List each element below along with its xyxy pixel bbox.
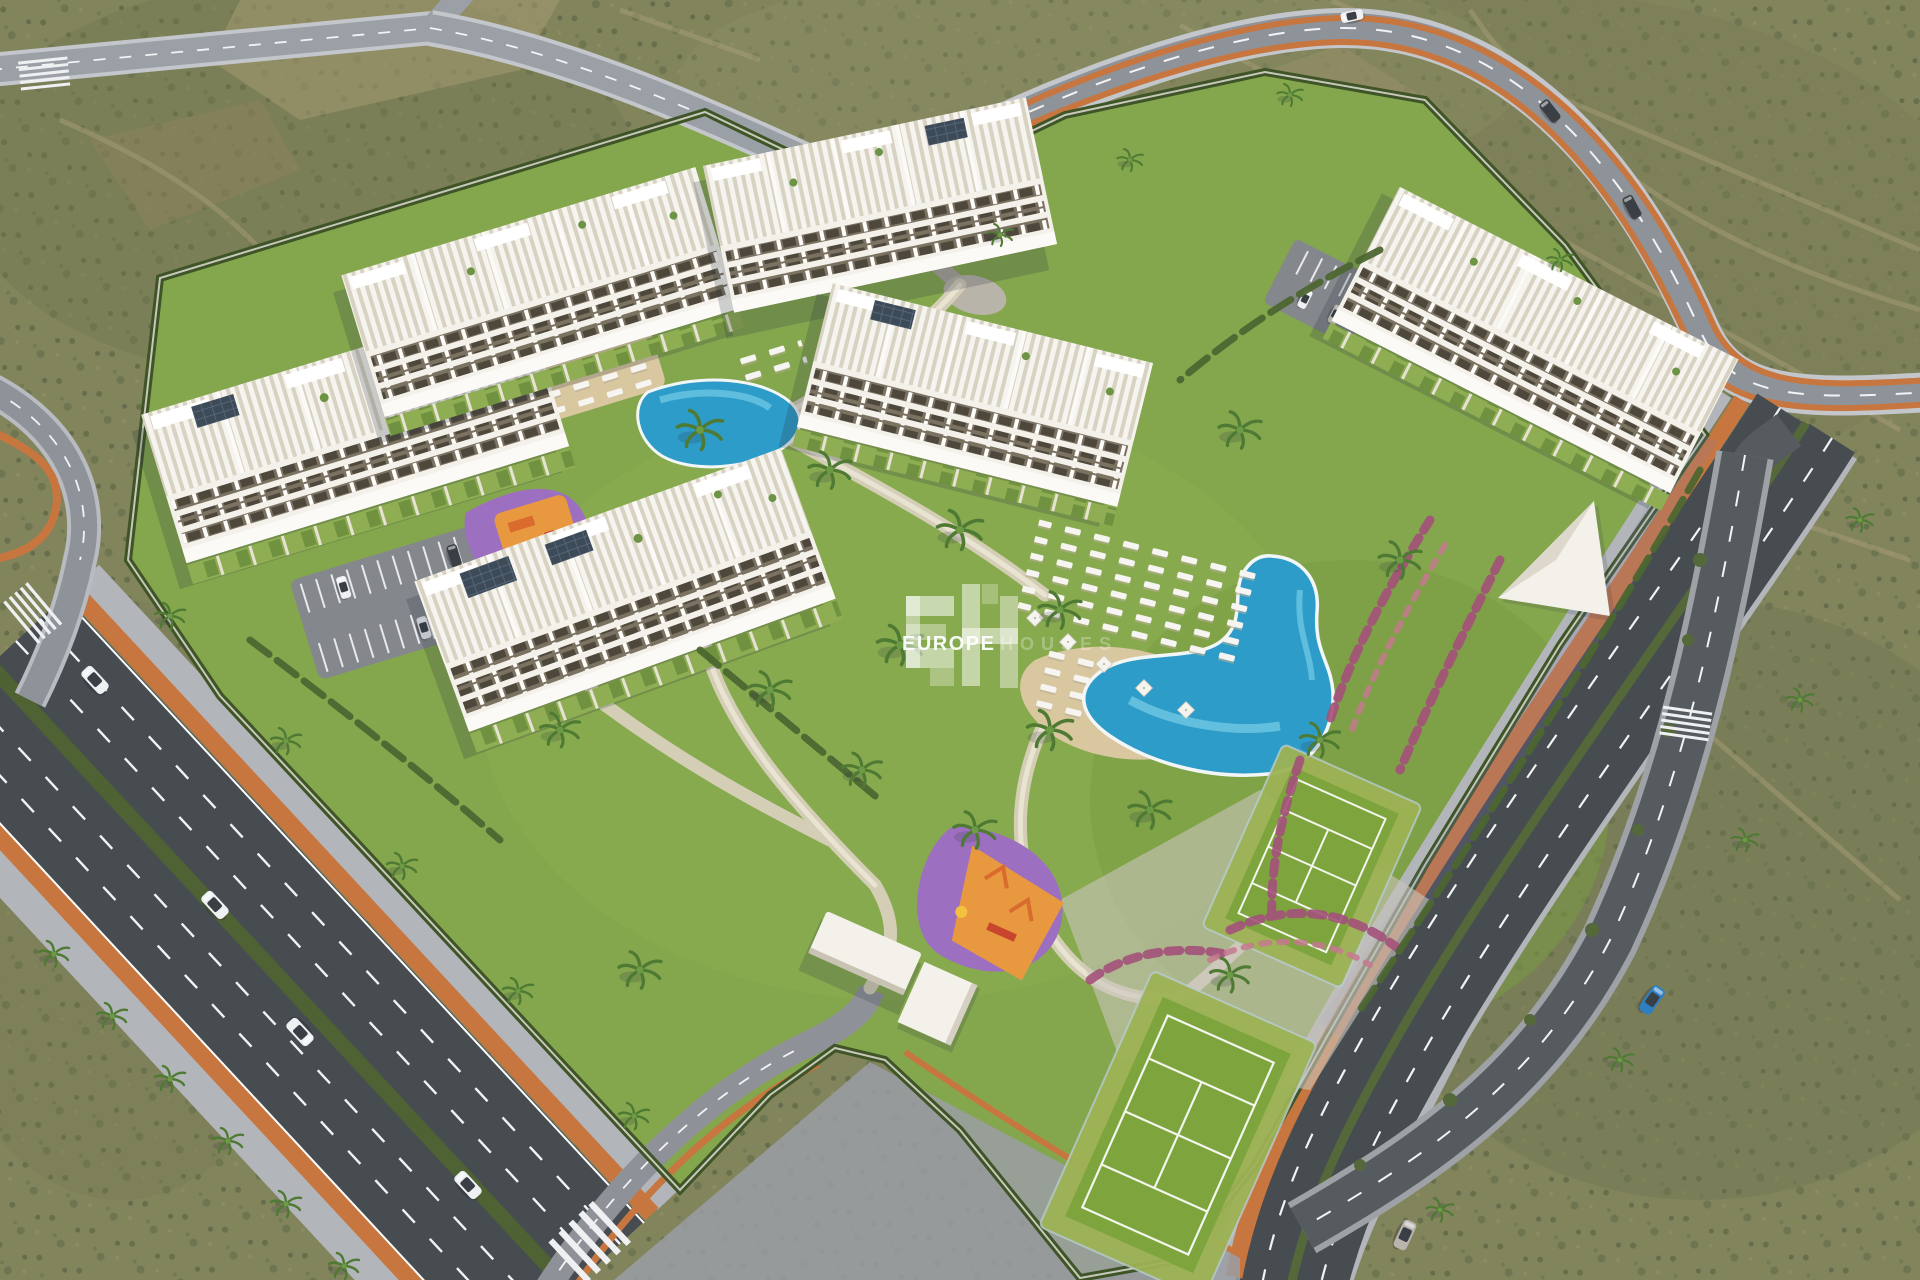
render-canvas: EUROPE HOUSES <box>0 0 1920 1280</box>
aerial-render: EUROPE HOUSES <box>0 0 1920 1280</box>
watermark-brand-text: EUROPE <box>902 633 995 655</box>
watermark-brand-suffix: HOUSES <box>1000 634 1118 654</box>
